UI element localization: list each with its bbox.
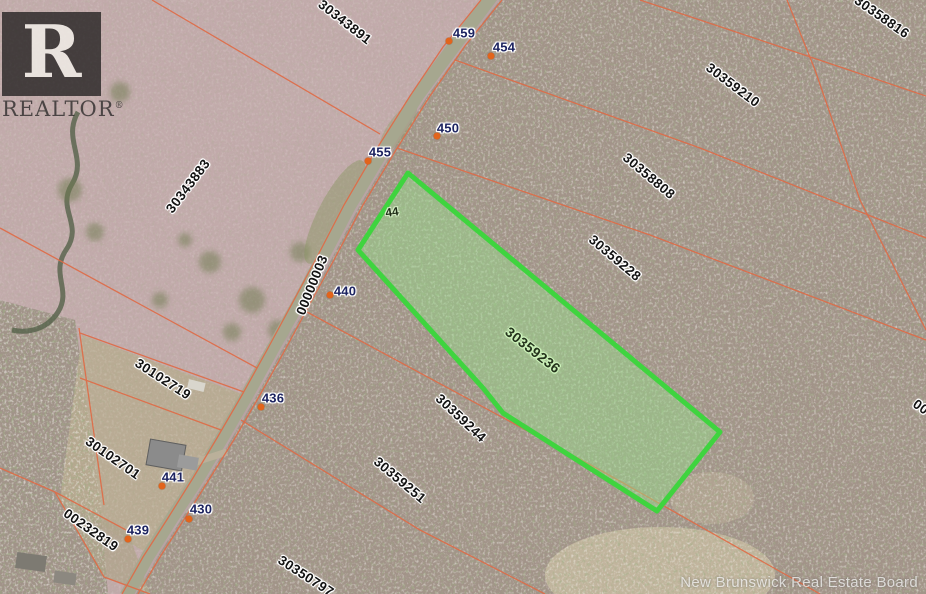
map-terrain: [0, 0, 926, 594]
lot-number-label: 44: [384, 204, 399, 220]
aerial-parcel-map[interactable]: 3034389130358816303592103035880830343883…: [0, 0, 926, 594]
civic-address-dot: [186, 516, 193, 523]
realtor-wordmark-text: REALTOR: [2, 97, 115, 121]
civic-address-dot: [125, 536, 132, 543]
civic-address-dot: [446, 38, 453, 45]
civic-address-dot: [258, 404, 265, 411]
realtor-logo-r-icon: R: [22, 16, 82, 88]
board-credit: New Brunswick Real Estate Board: [680, 574, 918, 591]
registered-trademark-symbol: ®: [115, 101, 125, 111]
civic-address-dot: [488, 53, 495, 60]
civic-address-dot: [434, 133, 441, 140]
realtor-wordmark: REALTOR®: [2, 97, 120, 121]
civic-address-dot: [159, 483, 166, 490]
civic-address-dot: [365, 158, 372, 165]
civic-address-dot: [327, 292, 334, 299]
realtor-watermark: R REALTOR®: [2, 12, 120, 121]
realtor-logo-box: R: [2, 12, 101, 96]
